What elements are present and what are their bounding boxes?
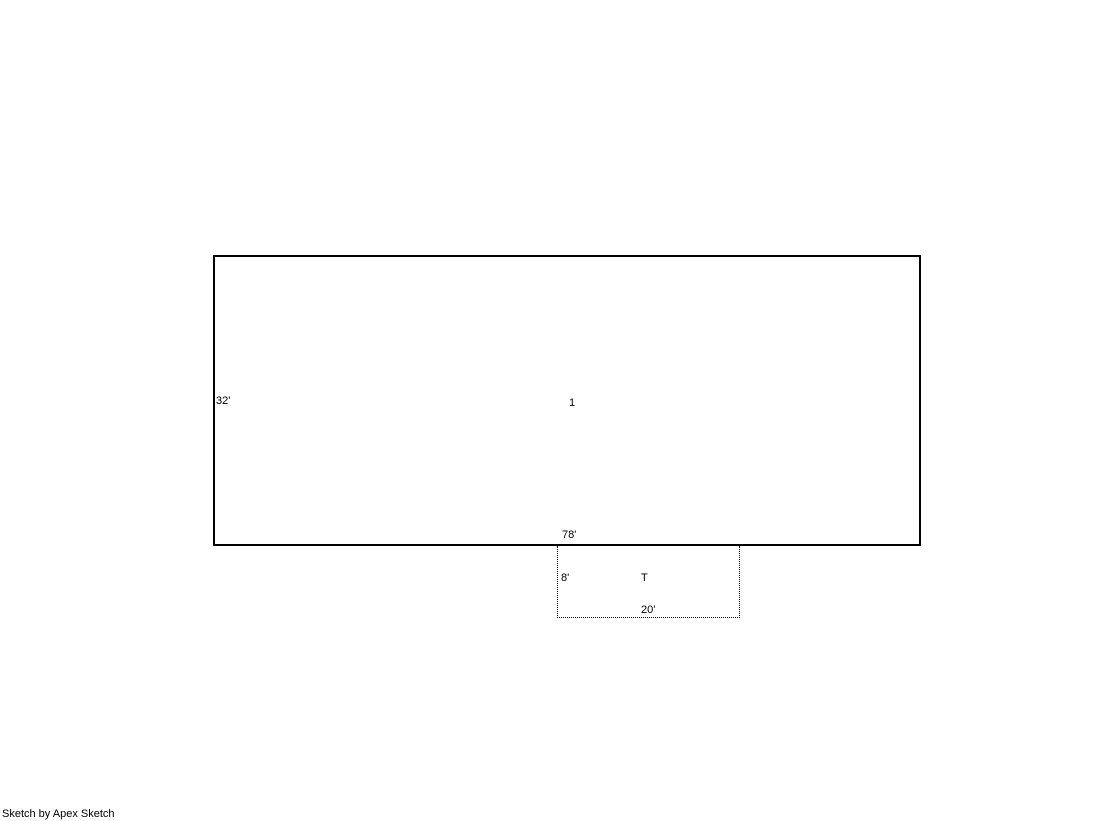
area-1-bottom-dimension-label: 78' [562, 529, 576, 542]
area-1-label: 1 [569, 397, 575, 410]
sketch-credit: Sketch by Apex Sketch [2, 808, 115, 821]
area-1-outline [213, 255, 921, 546]
area-t-label: T [641, 572, 648, 585]
area-1-left-dimension-label: 32' [216, 395, 230, 408]
area-t-left-dimension-label: 8' [561, 572, 569, 585]
sketch-canvas: 32' 1 78' 8' T 20' Sketch by Apex Sketch [0, 0, 1119, 821]
area-t-bottom-dimension-label: 20' [641, 604, 655, 617]
